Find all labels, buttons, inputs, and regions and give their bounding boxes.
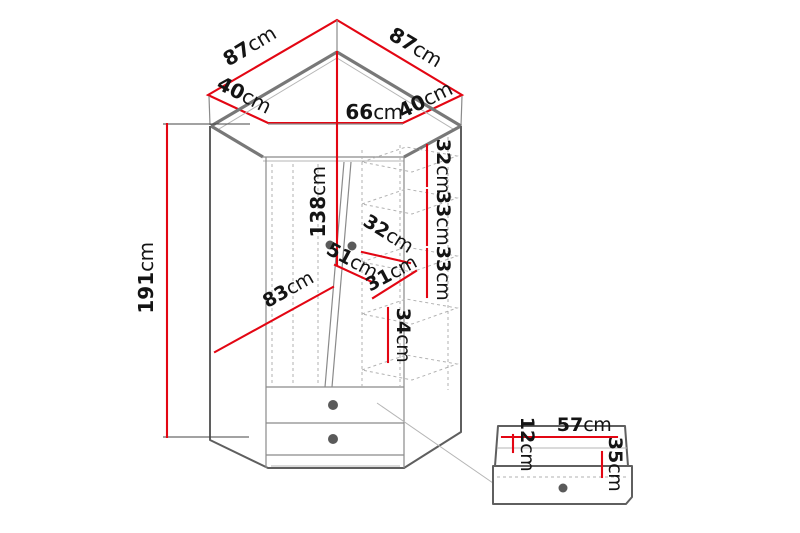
diagram-canvas: 87cm 87cm 40cm 40cm 66cm 191cm 138cm 32c… — [0, 0, 800, 533]
left-vertex-connector — [209, 96, 210, 125]
dim-label-drawer-top-offset: 12cm — [516, 417, 538, 471]
dim-label-drawer-width: 57cm — [557, 414, 611, 436]
dim-label-top-front-width: 66cm — [345, 100, 402, 124]
front-view — [210, 126, 461, 468]
wardrobe-dimension-diagram: 87cm 87cm 40cm 40cm 66cm 191cm 138cm 32c… — [0, 0, 800, 533]
dim-label-shelf-depth: 32cm — [359, 210, 417, 257]
dim-label-bottom-section-height: 34cm — [392, 308, 414, 362]
dim-label-shelf-spacing-1: 32cm — [432, 139, 454, 193]
dim-label-inner-diagonal: 83cm — [259, 267, 317, 313]
dim-label-door-height: 138cm — [306, 166, 330, 237]
dim-label-total-height: 191cm — [134, 242, 158, 313]
dim-label-shelf-spacing-3: 33cm — [432, 246, 454, 300]
dim-label-shelf-spacing-2: 33cm — [432, 191, 454, 245]
dim-label-top-back-right: 87cm — [385, 22, 447, 72]
right-vertex-connector — [461, 96, 462, 126]
drawer-handle-top-icon — [328, 400, 338, 410]
dim-label-top-back-left: 87cm — [219, 21, 281, 71]
detail-leader-line — [377, 403, 493, 483]
dim-label-drawer-front-height: 35cm — [604, 437, 626, 491]
drawer-handle-bottom-icon — [328, 434, 338, 444]
detail-drawer-handle-icon — [559, 484, 568, 493]
top-chamfer-left — [211, 126, 263, 157]
carcass-outline — [210, 126, 461, 468]
